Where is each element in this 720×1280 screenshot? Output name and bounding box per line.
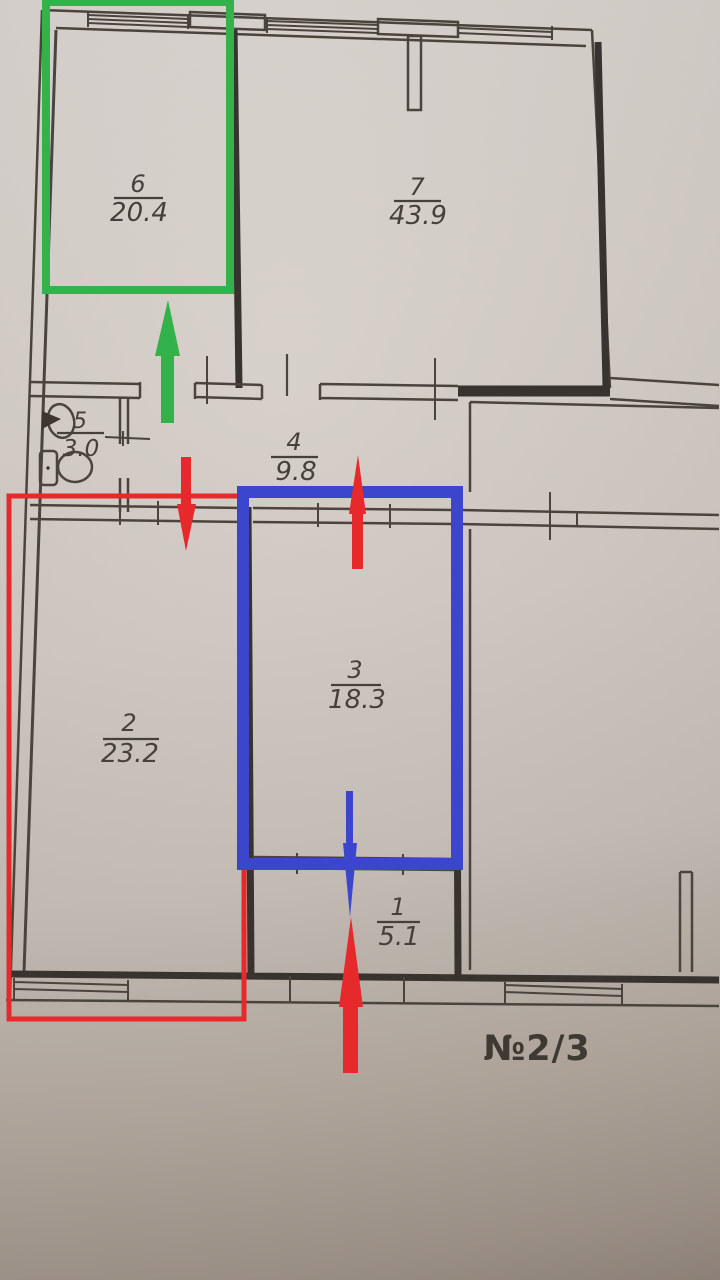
svg-text:5: 5 xyxy=(73,409,87,434)
left-inner-wall xyxy=(24,30,56,972)
svg-text:4: 4 xyxy=(286,428,301,456)
interior-wall-lines xyxy=(30,382,719,972)
svg-text:3.0: 3.0 xyxy=(63,436,100,462)
svg-text:43.9: 43.9 xyxy=(389,201,447,231)
room-5-label: 5 3.0 xyxy=(57,409,104,462)
svg-text:5.1: 5.1 xyxy=(378,922,419,952)
room-4-label: 4 9.8 xyxy=(271,428,318,487)
svg-text:2: 2 xyxy=(121,709,136,737)
svg-text:6: 6 xyxy=(130,170,145,198)
sink-tap-icon xyxy=(42,411,61,429)
svg-text:23.2: 23.2 xyxy=(101,739,159,769)
red-arrow-down-icon xyxy=(177,457,196,551)
unit-number-label: №2/3 xyxy=(483,1029,591,1069)
svg-text:1: 1 xyxy=(390,893,405,921)
blue-arrow-down-icon xyxy=(343,791,357,917)
green-arrow-up-icon xyxy=(155,300,180,423)
green-highlight-box xyxy=(46,2,230,290)
floor-plan-drawing: 6 20.4 7 43.9 5 3.0 4 9.8 3 18.3 2 23.2 xyxy=(0,0,720,1280)
svg-text:3: 3 xyxy=(347,656,362,684)
svg-text:20.4: 20.4 xyxy=(110,198,168,228)
svg-text:18.3: 18.3 xyxy=(328,685,386,715)
toilet-tank-dot xyxy=(46,466,49,469)
room-1-label: 1 5.1 xyxy=(377,893,420,952)
red-arrow-up-middle-icon xyxy=(349,455,366,569)
svg-text:9.8: 9.8 xyxy=(275,457,316,487)
panel-joint-ticks xyxy=(105,356,577,1003)
red-arrow-up-bottom-icon xyxy=(339,917,363,1073)
room-6-label: 6 20.4 xyxy=(110,170,168,228)
room-2-label: 2 23.2 xyxy=(101,709,159,769)
svg-text:7: 7 xyxy=(409,173,425,201)
floor-plan-photo: 6 20.4 7 43.9 5 3.0 4 9.8 3 18.3 2 23.2 xyxy=(0,0,720,1280)
room-7-label: 7 43.9 xyxy=(389,173,447,231)
room-3-label: 3 18.3 xyxy=(328,656,386,715)
